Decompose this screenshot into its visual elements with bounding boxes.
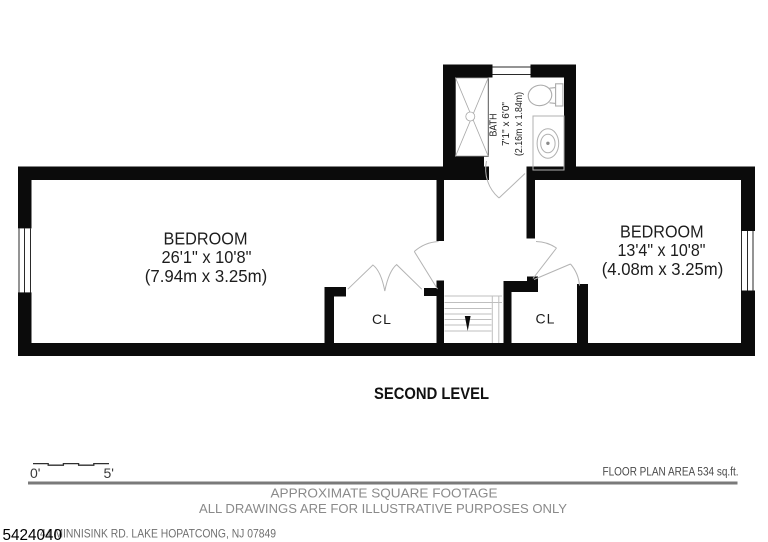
svg-text:0': 0'	[30, 465, 40, 481]
svg-text:5424040: 5424040	[3, 527, 63, 542]
svg-text:FLOOR PLAN AREA 534 sq.ft.: FLOOR PLAN AREA 534 sq.ft.	[603, 467, 739, 479]
svg-text:5': 5'	[104, 465, 114, 481]
svg-text:13'4" x 10'8": 13'4" x 10'8"	[618, 240, 706, 260]
svg-text:(4.08m x 3.25m): (4.08m x 3.25m)	[602, 259, 724, 279]
svg-text:(2.16m x 1.84m): (2.16m x 1.84m)	[514, 92, 525, 156]
svg-text:CL: CL	[536, 311, 556, 327]
svg-text:APPROXIMATE SQUARE FOOTAGE: APPROXIMATE SQUARE FOOTAGE	[271, 487, 498, 501]
svg-text:44 MINNISINK RD. LAKE HOPATCON: 44 MINNISINK RD. LAKE HOPATCONG, NJ 0784…	[40, 527, 276, 541]
svg-text:(7.94m x 3.25m): (7.94m x 3.25m)	[145, 266, 268, 286]
svg-text:ALL DRAWINGS ARE FOR ILLUSTRAT: ALL DRAWINGS ARE FOR ILLUSTRATIVE PURPOS…	[199, 502, 568, 516]
svg-text:7'1" x 6'0": 7'1" x 6'0"	[501, 102, 512, 146]
svg-text:BEDROOM: BEDROOM	[164, 229, 248, 249]
svg-text:BEDROOM: BEDROOM	[620, 222, 704, 242]
svg-text:SECOND LEVEL: SECOND LEVEL	[374, 384, 489, 403]
svg-text:26'1" x 10'8": 26'1" x 10'8"	[162, 247, 252, 267]
svg-text:BATH: BATH	[489, 114, 500, 137]
svg-text:CL: CL	[372, 311, 392, 327]
